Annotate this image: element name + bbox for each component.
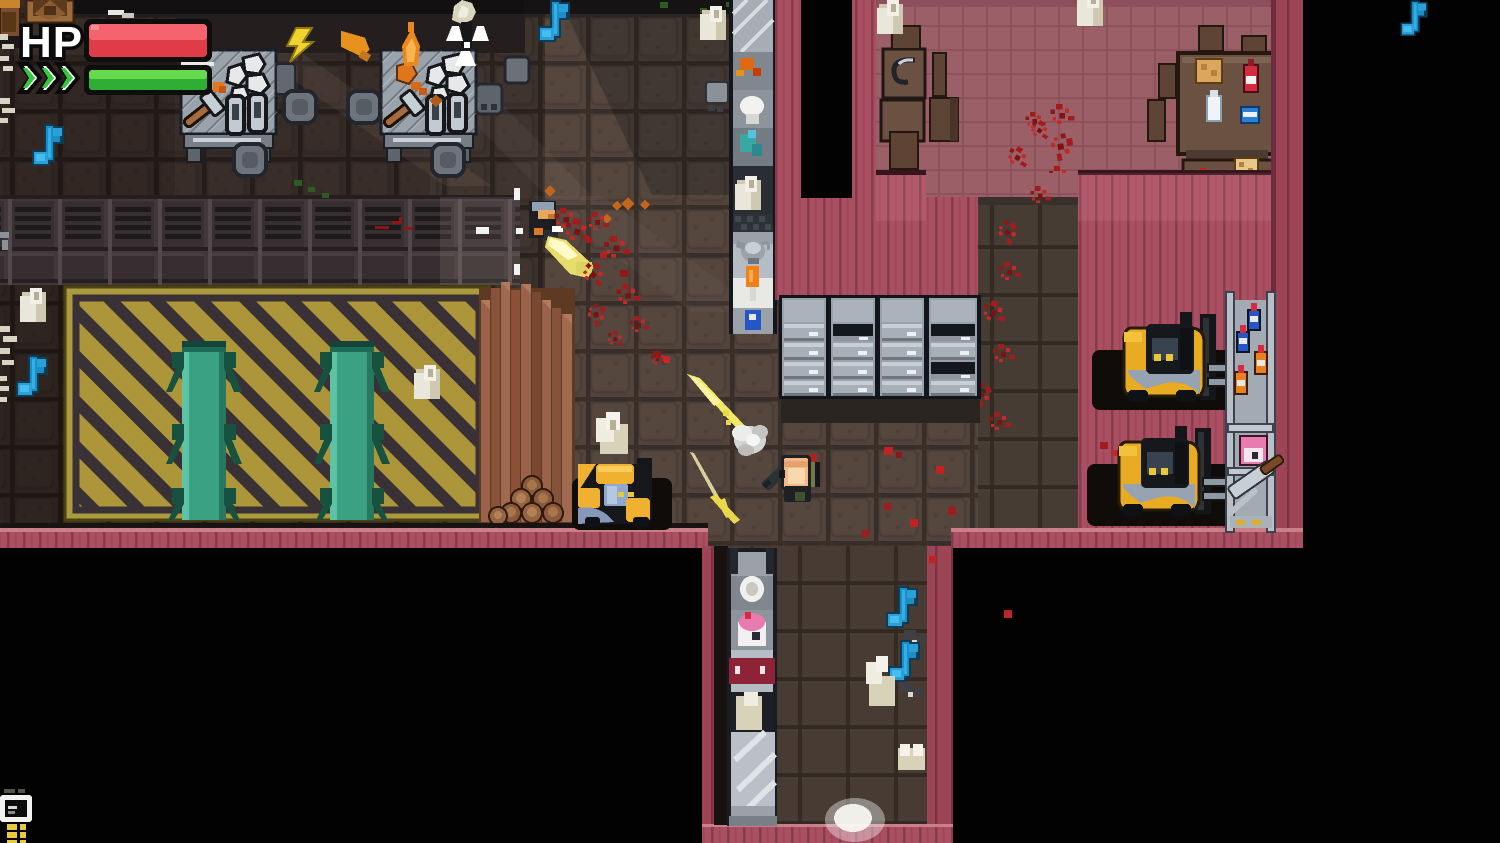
svg-text:HP: HP xyxy=(20,18,83,67)
